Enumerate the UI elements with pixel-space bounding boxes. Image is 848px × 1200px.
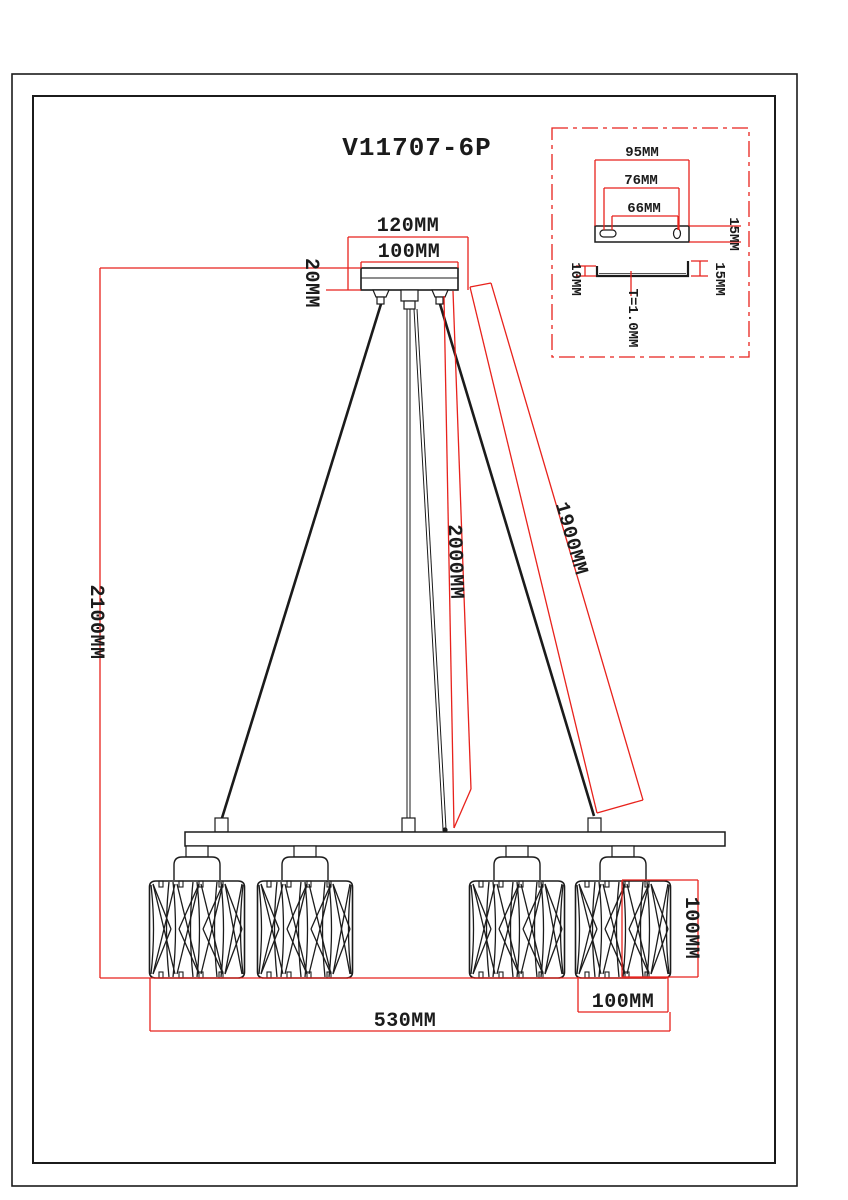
dim-bracket-holes: 76MM: [624, 173, 658, 189]
center-wire-connector: [401, 290, 418, 301]
left-cable: [222, 304, 381, 818]
left-cable-grip: [373, 290, 389, 297]
center-peg: [402, 818, 415, 832]
dim-canopy-outer: 120MM: [377, 215, 440, 238]
shade-4: [576, 881, 671, 978]
dim-shade-height: 100MM: [679, 897, 702, 960]
dim-thickness: T=1.0MM: [624, 289, 640, 348]
right-cable-grip: [432, 290, 448, 297]
dim-bracket-inner: 66MM: [627, 201, 661, 217]
shade-3: [470, 881, 565, 978]
dim-lip-left: 10MM: [567, 262, 583, 296]
technical-drawing-page: V11707-6P: [0, 0, 848, 1200]
shade-2: [258, 881, 353, 978]
ring-frame: [185, 818, 725, 846]
right-peg: [588, 818, 601, 832]
bracket-detail-inset: 95MM 76MM 66MM 15MM 10MM 15MM T=1.0MM: [552, 128, 749, 357]
power-wire: [414, 309, 443, 829]
dim-overall-height: 2100MM: [84, 584, 107, 659]
lamp-sockets: [174, 846, 646, 880]
dim-canopy-inner: 100MM: [378, 241, 441, 264]
dim-center-rod: 2000MM: [442, 524, 468, 600]
dim-ring-width: 530MM: [374, 1010, 437, 1033]
dim-bracket-outer: 95MM: [625, 145, 659, 161]
dim-shade-width: 100MM: [592, 991, 655, 1014]
dim-cable-length: 1900MM: [549, 500, 592, 578]
model-number-title: V11707-6P: [342, 133, 491, 163]
canopy: [361, 268, 458, 309]
dim-lip-right: 15MM: [711, 262, 727, 296]
chandelier-dimension-drawing: V11707-6P: [0, 0, 848, 1200]
crystal-shades: [150, 881, 671, 978]
left-peg: [215, 818, 228, 832]
dim-bracket-depth: 15MM: [725, 217, 741, 251]
bracket-plate: [595, 226, 689, 242]
dim-canopy-height: 20MM: [299, 258, 322, 308]
shade-1: [150, 881, 245, 978]
